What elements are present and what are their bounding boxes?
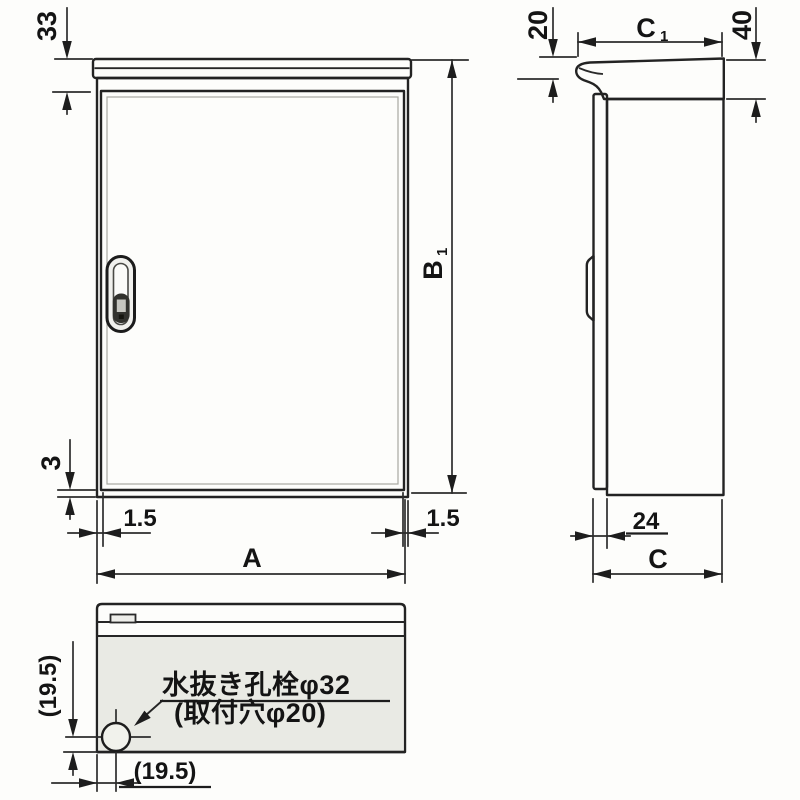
dim-roof-edge-40: 40 [727, 8, 765, 122]
dim-19-5-horizontal-label: (19.5) [134, 758, 197, 785]
dim-drain-offset-horizontal: (19.5) [52, 755, 211, 791]
side-body-panel [607, 99, 724, 495]
dim-3-label: 3 [36, 455, 66, 470]
side-view: 20 C 1 40 24 [518, 8, 765, 582]
dim-door-inset-right: 1.5 [372, 493, 460, 546]
dim-24-label: 24 [633, 508, 660, 535]
dim-door-inset-right-label: 1.5 [426, 505, 459, 532]
bottom-view: 水抜き孔栓φ32 (取付穴φ20) (19.5) (19.5) [35, 604, 405, 791]
dim-bottom-gap-3: 3 [36, 440, 95, 519]
cabinet-door [101, 91, 404, 490]
door-handle [107, 257, 135, 332]
dim-33-label: 33 [32, 11, 62, 41]
dim-roof-front-drop-20: 20 [518, 8, 576, 102]
cabinet-roof [93, 59, 411, 78]
dim-19-5-vertical-label: (19.5) [35, 655, 62, 718]
dim-width-A-label: A [242, 543, 262, 573]
dim-C-label: C [648, 544, 668, 574]
hinge-tab [111, 615, 136, 623]
side-door-panel [594, 94, 608, 489]
drain-note-line2: (取付穴φ20) [174, 698, 326, 728]
front-view: 33 3 1.5 1.5 [32, 8, 468, 583]
dim-height-B1: B 1 [412, 60, 468, 493]
dim-height-B1-label: B [418, 260, 448, 280]
dim-C1-subscript: 1 [660, 28, 668, 45]
dim-20-label: 20 [523, 10, 553, 40]
dim-40-label: 40 [727, 10, 757, 40]
dim-roof-depth-C1: C 1 [578, 13, 722, 56]
side-handle-bump [587, 256, 594, 321]
dim-drain-offset-vertical: (19.5) [35, 642, 97, 775]
drawing-canvas: 33 3 1.5 1.5 [0, 0, 800, 800]
dim-roof-offset-33: 33 [32, 8, 92, 114]
handle-lock [113, 294, 130, 324]
cabinet-body [97, 78, 408, 497]
dim-height-B1-subscript: 1 [434, 248, 451, 256]
technical-drawing: 33 3 1.5 1.5 [0, 0, 800, 800]
dim-door-inset-left-label: 1.5 [123, 505, 156, 532]
dim-door-inset-left: 1.5 [68, 493, 157, 583]
drain-note-line1: 水抜き孔栓φ32 [162, 670, 350, 700]
dim-C1-label: C [636, 13, 656, 43]
